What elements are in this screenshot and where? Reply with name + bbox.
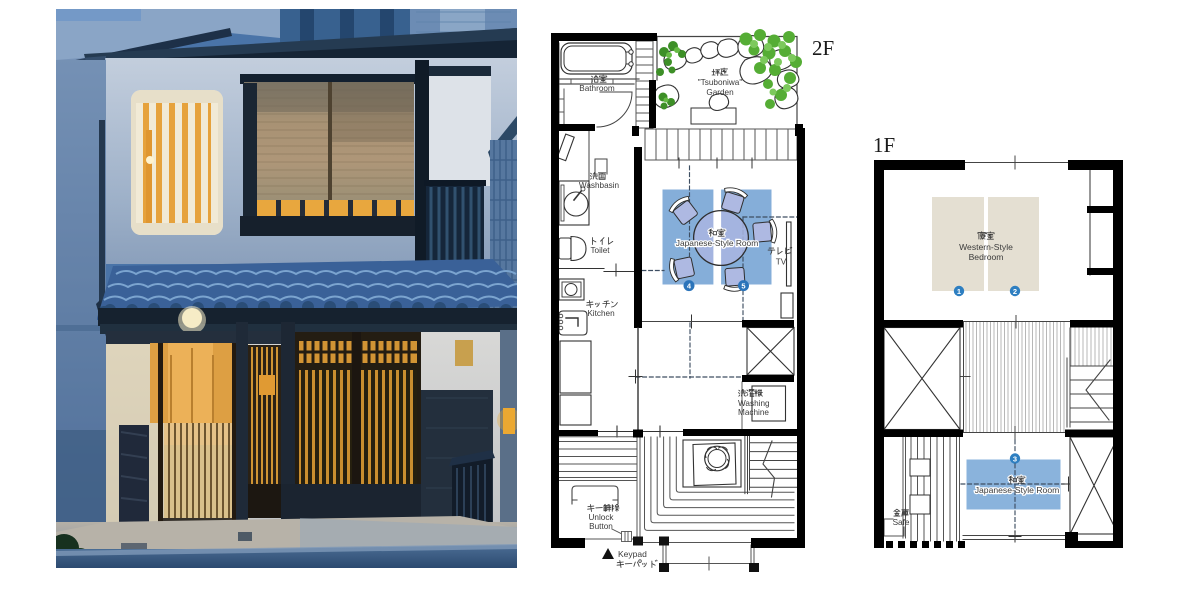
svg-text:TV: TV [776,258,787,267]
svg-text:Toilet: Toilet [590,246,610,255]
svg-text:Button: Button [589,522,613,531]
svg-text:2F: 2F [812,36,834,60]
svg-text:Kitchen: Kitchen [587,309,615,318]
svg-text:Japanese-Style Room: Japanese-Style Room [676,238,758,248]
svg-text:3: 3 [1013,455,1017,464]
svg-text:5: 5 [741,282,745,291]
svg-text:"Tsuboniwa": "Tsuboniwa" [698,78,743,87]
svg-text:1F: 1F [873,133,895,157]
svg-text:Safe: Safe [893,518,910,527]
svg-text:Keypad: Keypad [618,549,647,559]
svg-text:1: 1 [957,287,961,296]
svg-text:Garden: Garden [706,88,734,97]
svg-text:Western-Style: Western-Style [959,242,1013,252]
svg-text:Machine: Machine [738,408,769,417]
svg-text:Bedroom: Bedroom [969,252,1004,262]
svg-text:Japanese-Style Room: Japanese-Style Room [975,485,1060,495]
svg-text:Washing: Washing [738,399,770,408]
svg-text:Unlock: Unlock [588,513,614,522]
svg-text:Washbasin: Washbasin [579,181,620,190]
svg-text:2: 2 [1013,287,1017,296]
